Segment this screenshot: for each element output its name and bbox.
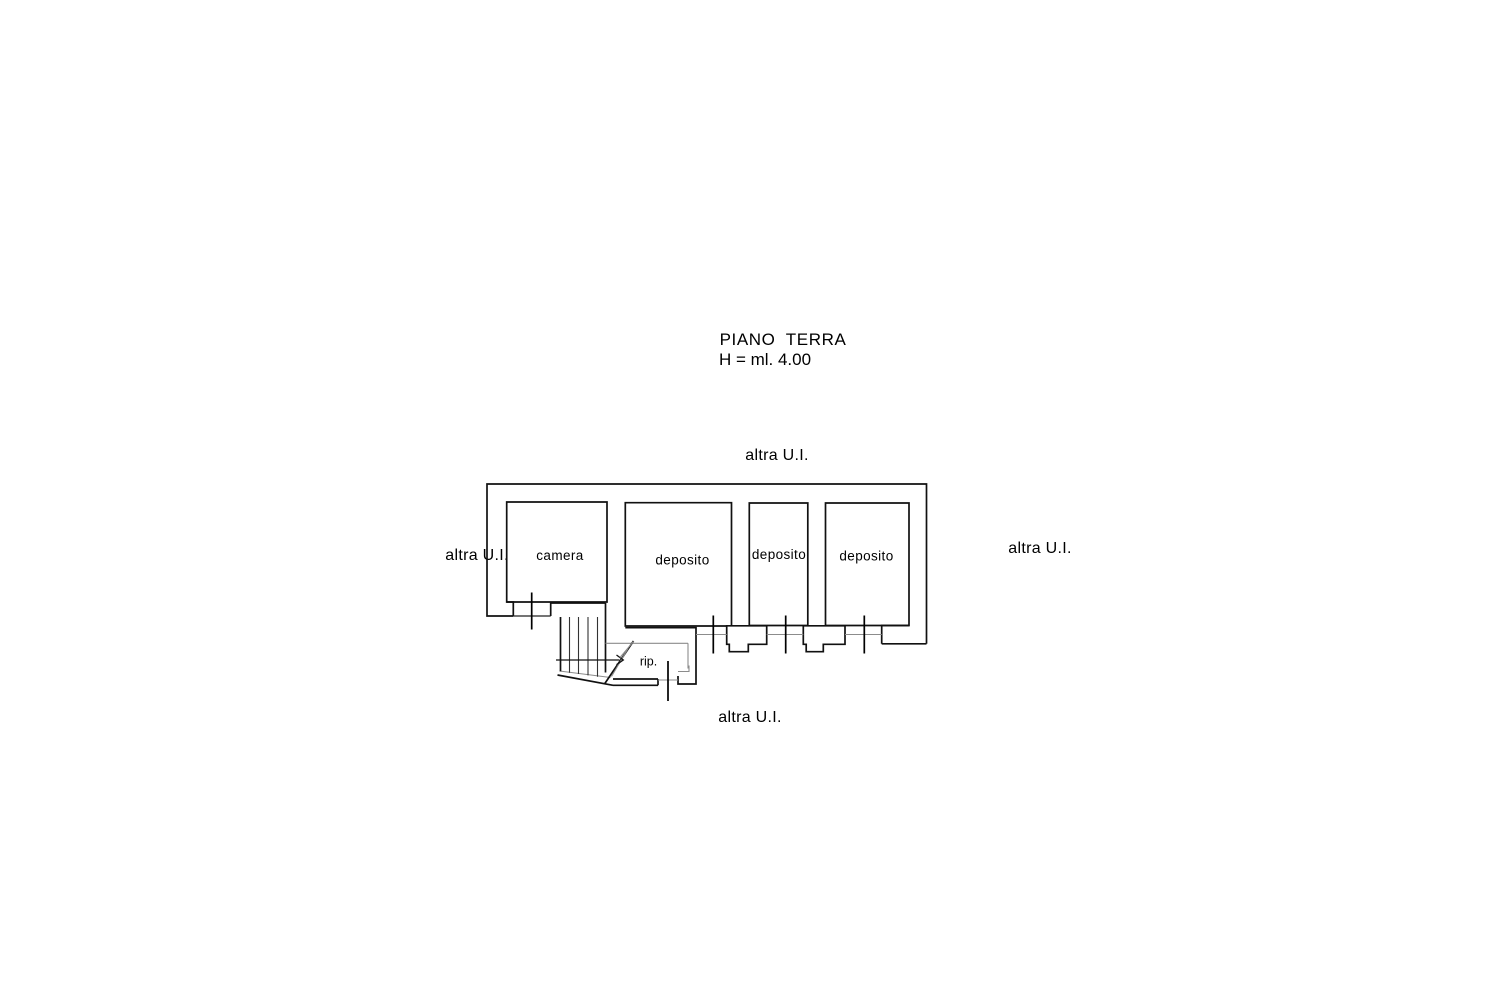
adjacent-unit-label-left: altra U.I.: [445, 547, 508, 564]
staircase: [556, 617, 634, 684]
stair-direction-arrow: [556, 642, 634, 665]
room-label-deposito-2: deposito: [752, 547, 806, 562]
adjacent-unit-label-right: altra U.I.: [1008, 540, 1071, 557]
room-label-camera: camera: [536, 548, 584, 563]
rip-bottom-wall-band: [613, 679, 658, 685]
adjacent-unit-label-top: altra U.I.: [745, 447, 808, 464]
stair-direction-diagonal: [620, 642, 634, 658]
room-label-rip: rip.: [640, 655, 657, 669]
wall-band-below-camera: [551, 603, 606, 616]
rip-block-outline: [625, 628, 696, 684]
door-pillar-2: [803, 626, 845, 652]
room-labels: camera deposito deposito deposito rip.: [536, 547, 893, 669]
floor-plan-drawing: PIANO TERRA H = ml. 4.00 altra U.I. altr…: [0, 0, 1500, 1000]
plan-height-note: H = ml. 4.00: [719, 350, 811, 369]
room-deposito-3-outline: [826, 503, 910, 626]
outer-wall-bottom-right-band: [882, 626, 927, 644]
room-label-deposito-3: deposito: [839, 549, 893, 564]
adjacent-unit-label-bottom: altra U.I.: [718, 709, 781, 726]
rip-door-jamb-notch: [678, 666, 689, 672]
room-label-deposito-1: deposito: [655, 553, 709, 568]
floor-plan-page: PIANO TERRA H = ml. 4.00 altra U.I. altr…: [0, 0, 1500, 1000]
room-deposito-2-outline: [749, 503, 808, 626]
stair-treads: [570, 617, 598, 677]
camera-door-jamb: [507, 602, 514, 616]
door-pillar-1: [727, 626, 767, 652]
plan-title: PIANO TERRA: [720, 330, 847, 349]
